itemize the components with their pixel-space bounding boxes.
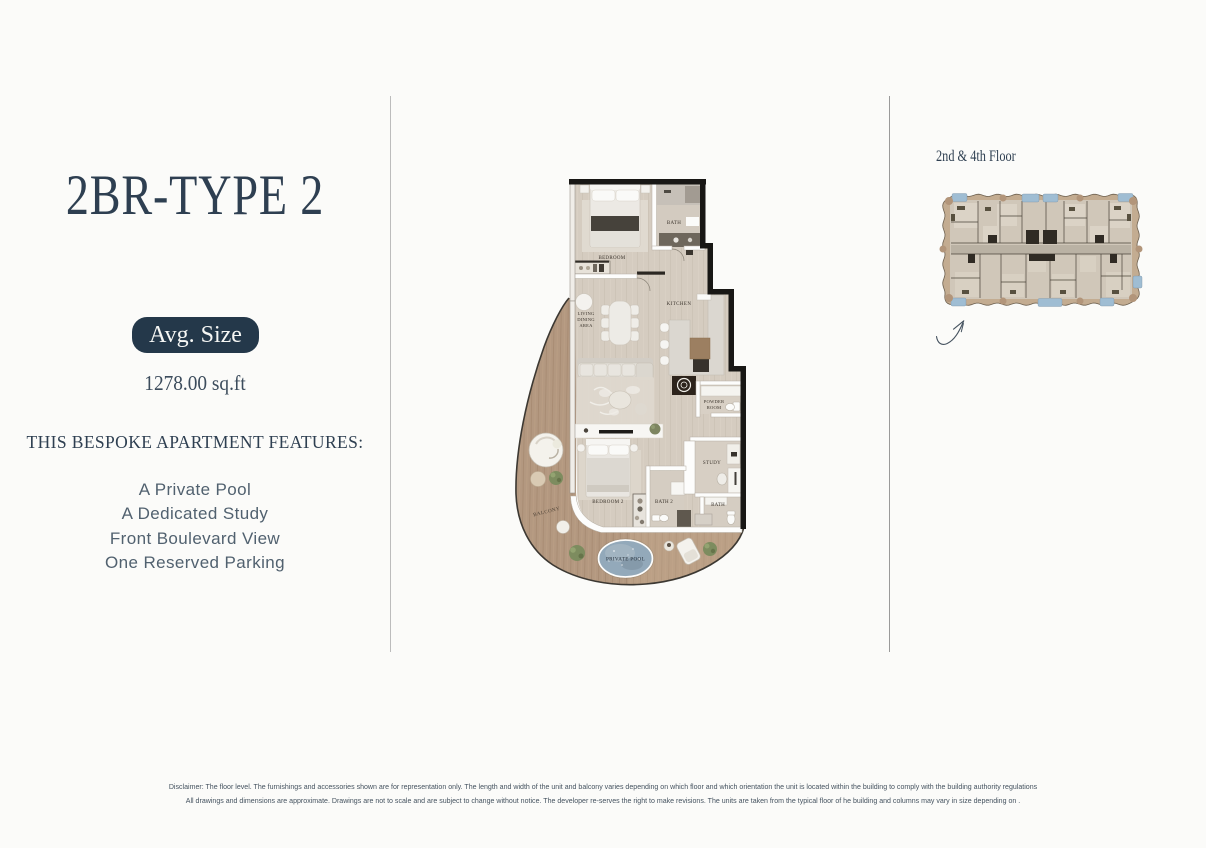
svg-text:ROOM: ROOM [707,405,722,410]
svg-text:LIVING: LIVING [577,311,595,316]
svg-text:BATH 2: BATH 2 [655,500,673,505]
svg-text:BEDROOM 2: BEDROOM 2 [592,500,624,505]
svg-text:AREA: AREA [579,323,593,328]
svg-text:POWDER: POWDER [704,399,725,404]
svg-text:DINING: DINING [577,317,595,322]
svg-text:BATH: BATH [711,503,725,508]
svg-text:STUDY: STUDY [703,461,721,466]
svg-text:KITCHEN: KITCHEN [667,302,692,307]
svg-text:BATH: BATH [667,221,681,226]
svg-text:PRIVATE POOL: PRIVATE POOL [606,557,645,563]
svg-text:BEDROOM: BEDROOM [598,256,625,261]
